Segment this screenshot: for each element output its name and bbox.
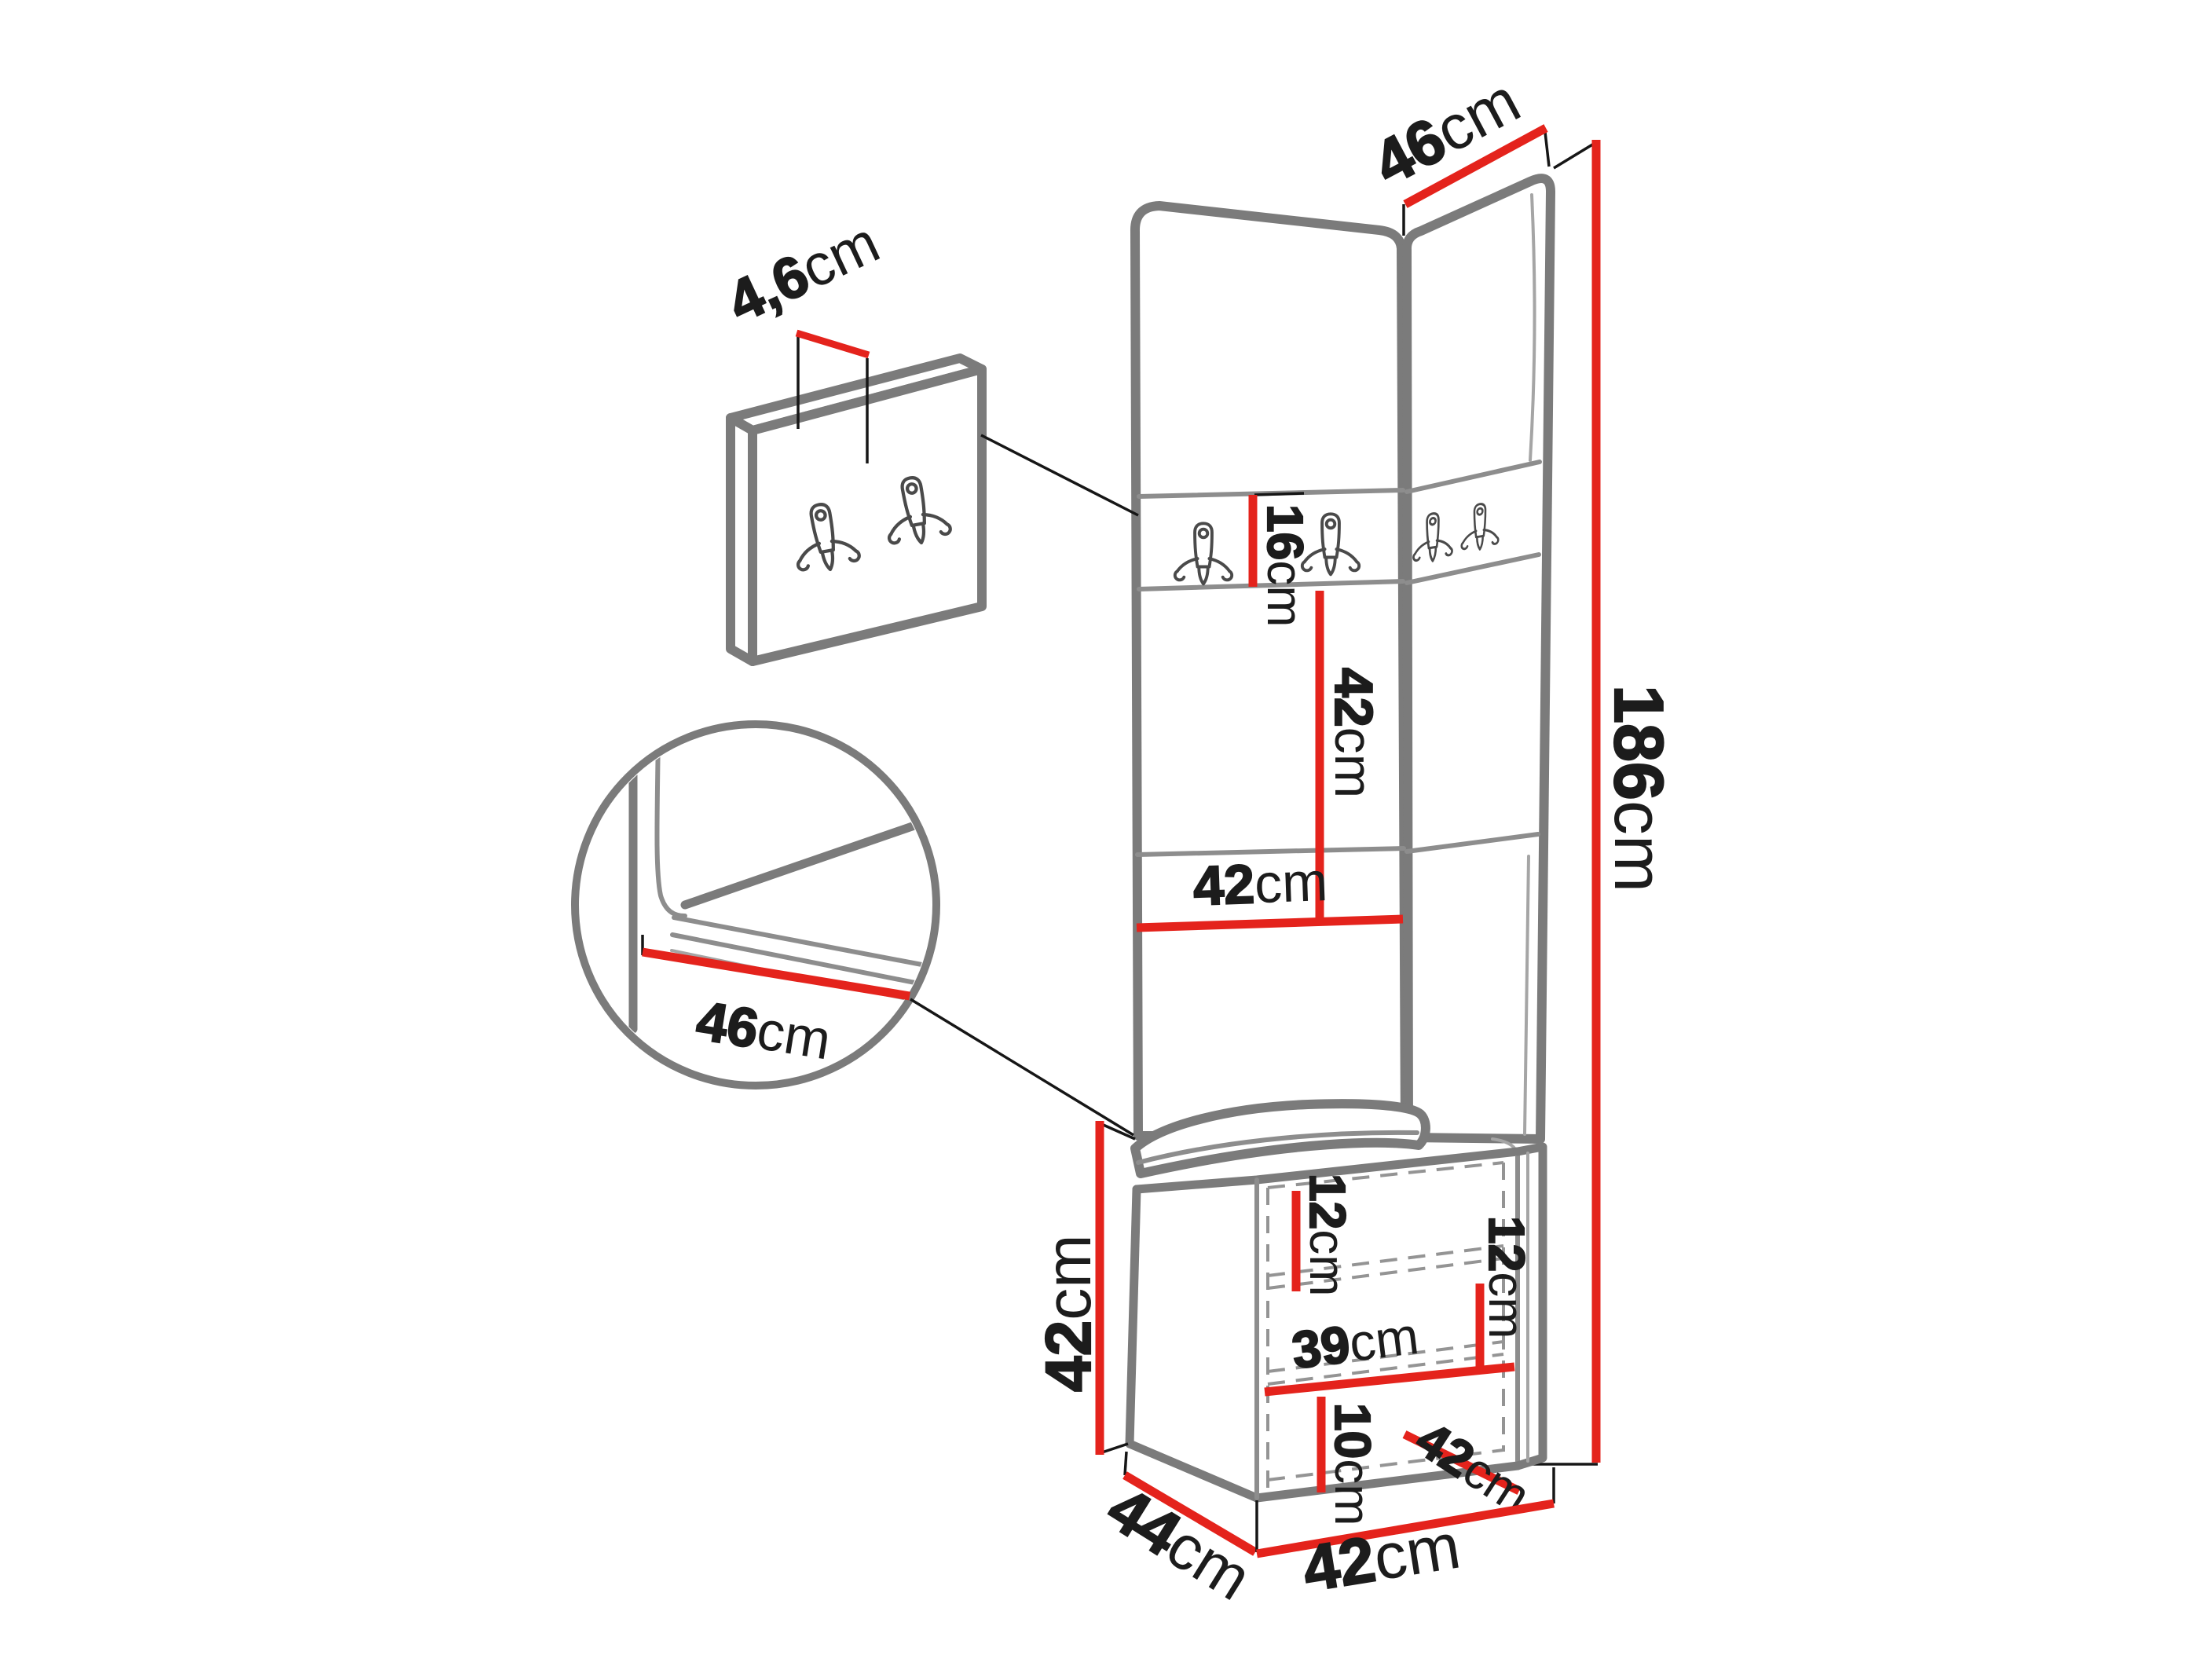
diagram-canvas: 4,6cm 46cm 16cm 42cm 42cm 186cm xyxy=(0,0,2212,1659)
dim-label-42cm-vertical: 42cm xyxy=(1324,668,1383,798)
dim-label-12cm-left: 12cm xyxy=(1299,1174,1356,1297)
dimension-line-red xyxy=(797,333,869,355)
dim-label-42cm-left: 42cm xyxy=(1033,1234,1104,1392)
extension-line xyxy=(1554,141,1598,168)
dim-label-16cm: 16cm xyxy=(1257,504,1313,628)
extension-line xyxy=(1545,132,1549,167)
furniture-dimension-diagram: 4,6cm 46cm 16cm 42cm 42cm 186cm xyxy=(0,0,2212,1659)
dim-label-4-6cm: 4,6cm xyxy=(718,209,889,335)
main-corner-panel-unit xyxy=(1135,178,1551,1139)
dim-lower-gap: 10cm xyxy=(1321,1397,1381,1526)
dim-upper-shelf-gap: 12cm xyxy=(1296,1174,1356,1297)
extension-line xyxy=(1254,493,1304,495)
dim-label-12cm-right: 12cm xyxy=(1478,1216,1535,1339)
dim-label-10cm: 10cm xyxy=(1324,1403,1381,1526)
dim-label-42cm-horizontal: 42cm xyxy=(1192,851,1329,917)
wall-hook-panel-detail xyxy=(731,358,1138,661)
dim-hook-strip-height: 16cm xyxy=(1253,493,1313,628)
leader-line-detail-circle xyxy=(910,999,1133,1135)
dim-cabinet-height: 42cm xyxy=(1033,1121,1135,1455)
seat-corner-detail-circle: 46cm xyxy=(575,724,1133,1135)
dim-label-42cm-bottom: 42cm xyxy=(1298,1511,1465,1606)
extension-line xyxy=(1125,1452,1126,1475)
right-tall-panel xyxy=(1407,178,1551,1139)
dim-label-186cm: 186cm xyxy=(1600,685,1678,892)
leader-line-hook-panel xyxy=(981,435,1138,515)
